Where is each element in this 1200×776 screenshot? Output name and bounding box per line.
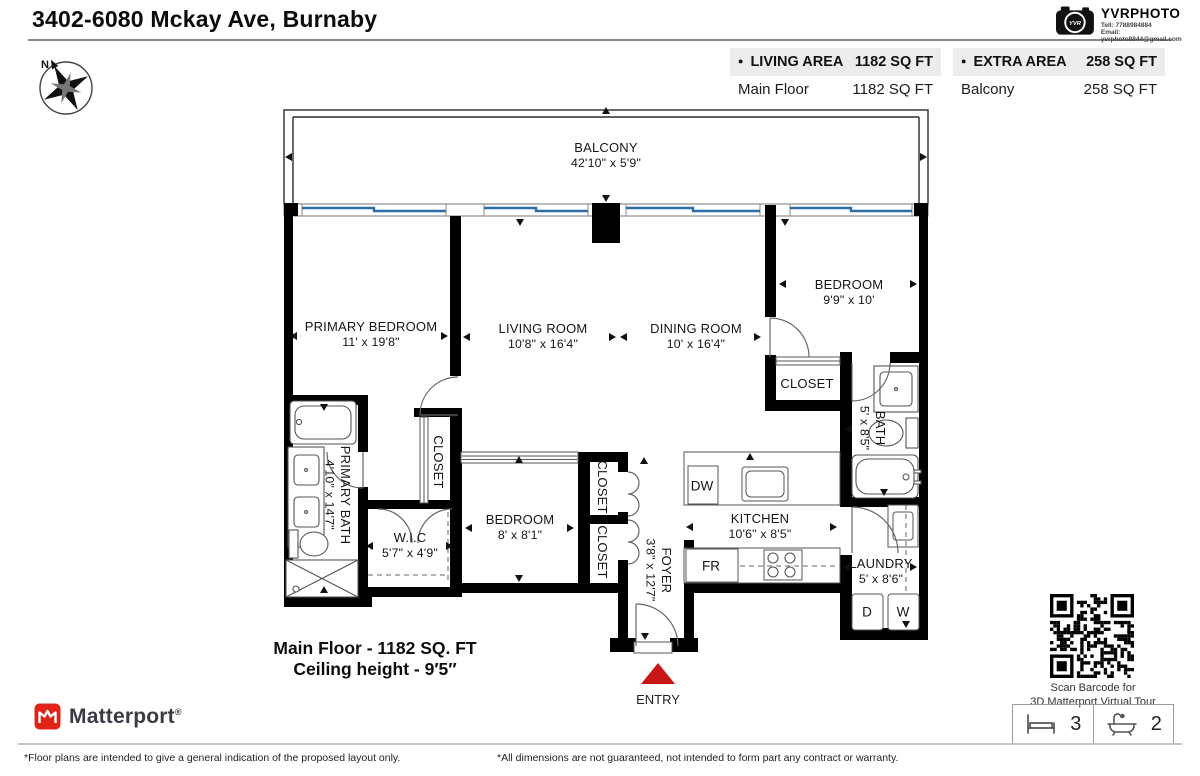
bed-bath-stats: 3 2 (1012, 704, 1174, 744)
room-label-primary-bedroom: PRIMARY BEDROOM11' x 19'8" (305, 319, 438, 351)
bed-icon (1024, 712, 1058, 736)
baths-count: 2 (1151, 713, 1162, 736)
room-label-bedroom-3: BEDROOM8' x 8'1" (486, 512, 555, 544)
fridge-label: FR (702, 559, 720, 574)
beds-stat: 3 (1013, 705, 1093, 743)
washer-label: W (897, 605, 910, 620)
room-label-laundry: LAUNDRY5' x 8'6" (849, 556, 912, 588)
room-label-closet-hall-1: CLOSET (594, 460, 610, 513)
beds-count: 3 (1070, 713, 1081, 736)
floorplan-page: 3402-6080 Mckay Ave, Burnaby YVR YVRPHOT… (0, 0, 1200, 776)
room-label-wic: W.I.C5'7" x 4'9" (382, 530, 438, 562)
room-label-dining-room: DINING ROOM10' x 16'4" (650, 321, 742, 353)
entry-arrow-icon (641, 663, 675, 684)
room-label-closet-primary: CLOSET (430, 435, 446, 488)
footer-disclaimer-right: *All dimensions are not guaranteed, not … (497, 752, 898, 764)
floor-summary: Main Floor - 1182 SQ. FT Ceiling height … (205, 638, 545, 681)
floorplan-drawing (0, 0, 1200, 776)
qr-code (1050, 594, 1134, 678)
matterport-branding: Matterport® (34, 703, 182, 730)
room-label-kitchen: KITCHEN10'6" x 8'5" (728, 511, 791, 543)
room-label-closet-hall-2: CLOSET (594, 525, 610, 578)
room-label-balcony: BALCONY42'10" x 5'9" (571, 140, 641, 172)
room-label-bath: BATH5' x 8'5" (856, 406, 888, 450)
room-label-closet-bedroom2: CLOSET (780, 376, 833, 392)
footer-rule (18, 743, 1182, 745)
footer-disclaimer-left: *Floor plans are intended to give a gene… (24, 752, 400, 764)
matterport-icon (34, 703, 61, 730)
walls (284, 203, 928, 652)
room-label-living-room: LIVING ROOM10'8" x 16'4" (499, 321, 588, 353)
baths-stat: 2 (1093, 705, 1174, 743)
entry-label: ENTRY (636, 692, 680, 707)
room-label-bedroom-2: BEDROOM9'9" x 10' (815, 277, 884, 309)
dishwasher-label: DW (691, 479, 714, 494)
dryer-label: D (862, 605, 872, 620)
bath-icon (1105, 711, 1139, 737)
room-label-foyer: FOYER3'8" x 12'7" (642, 538, 674, 601)
room-label-primary-bath: PRIMARY BATH4'10" x 14'7" (321, 446, 353, 544)
